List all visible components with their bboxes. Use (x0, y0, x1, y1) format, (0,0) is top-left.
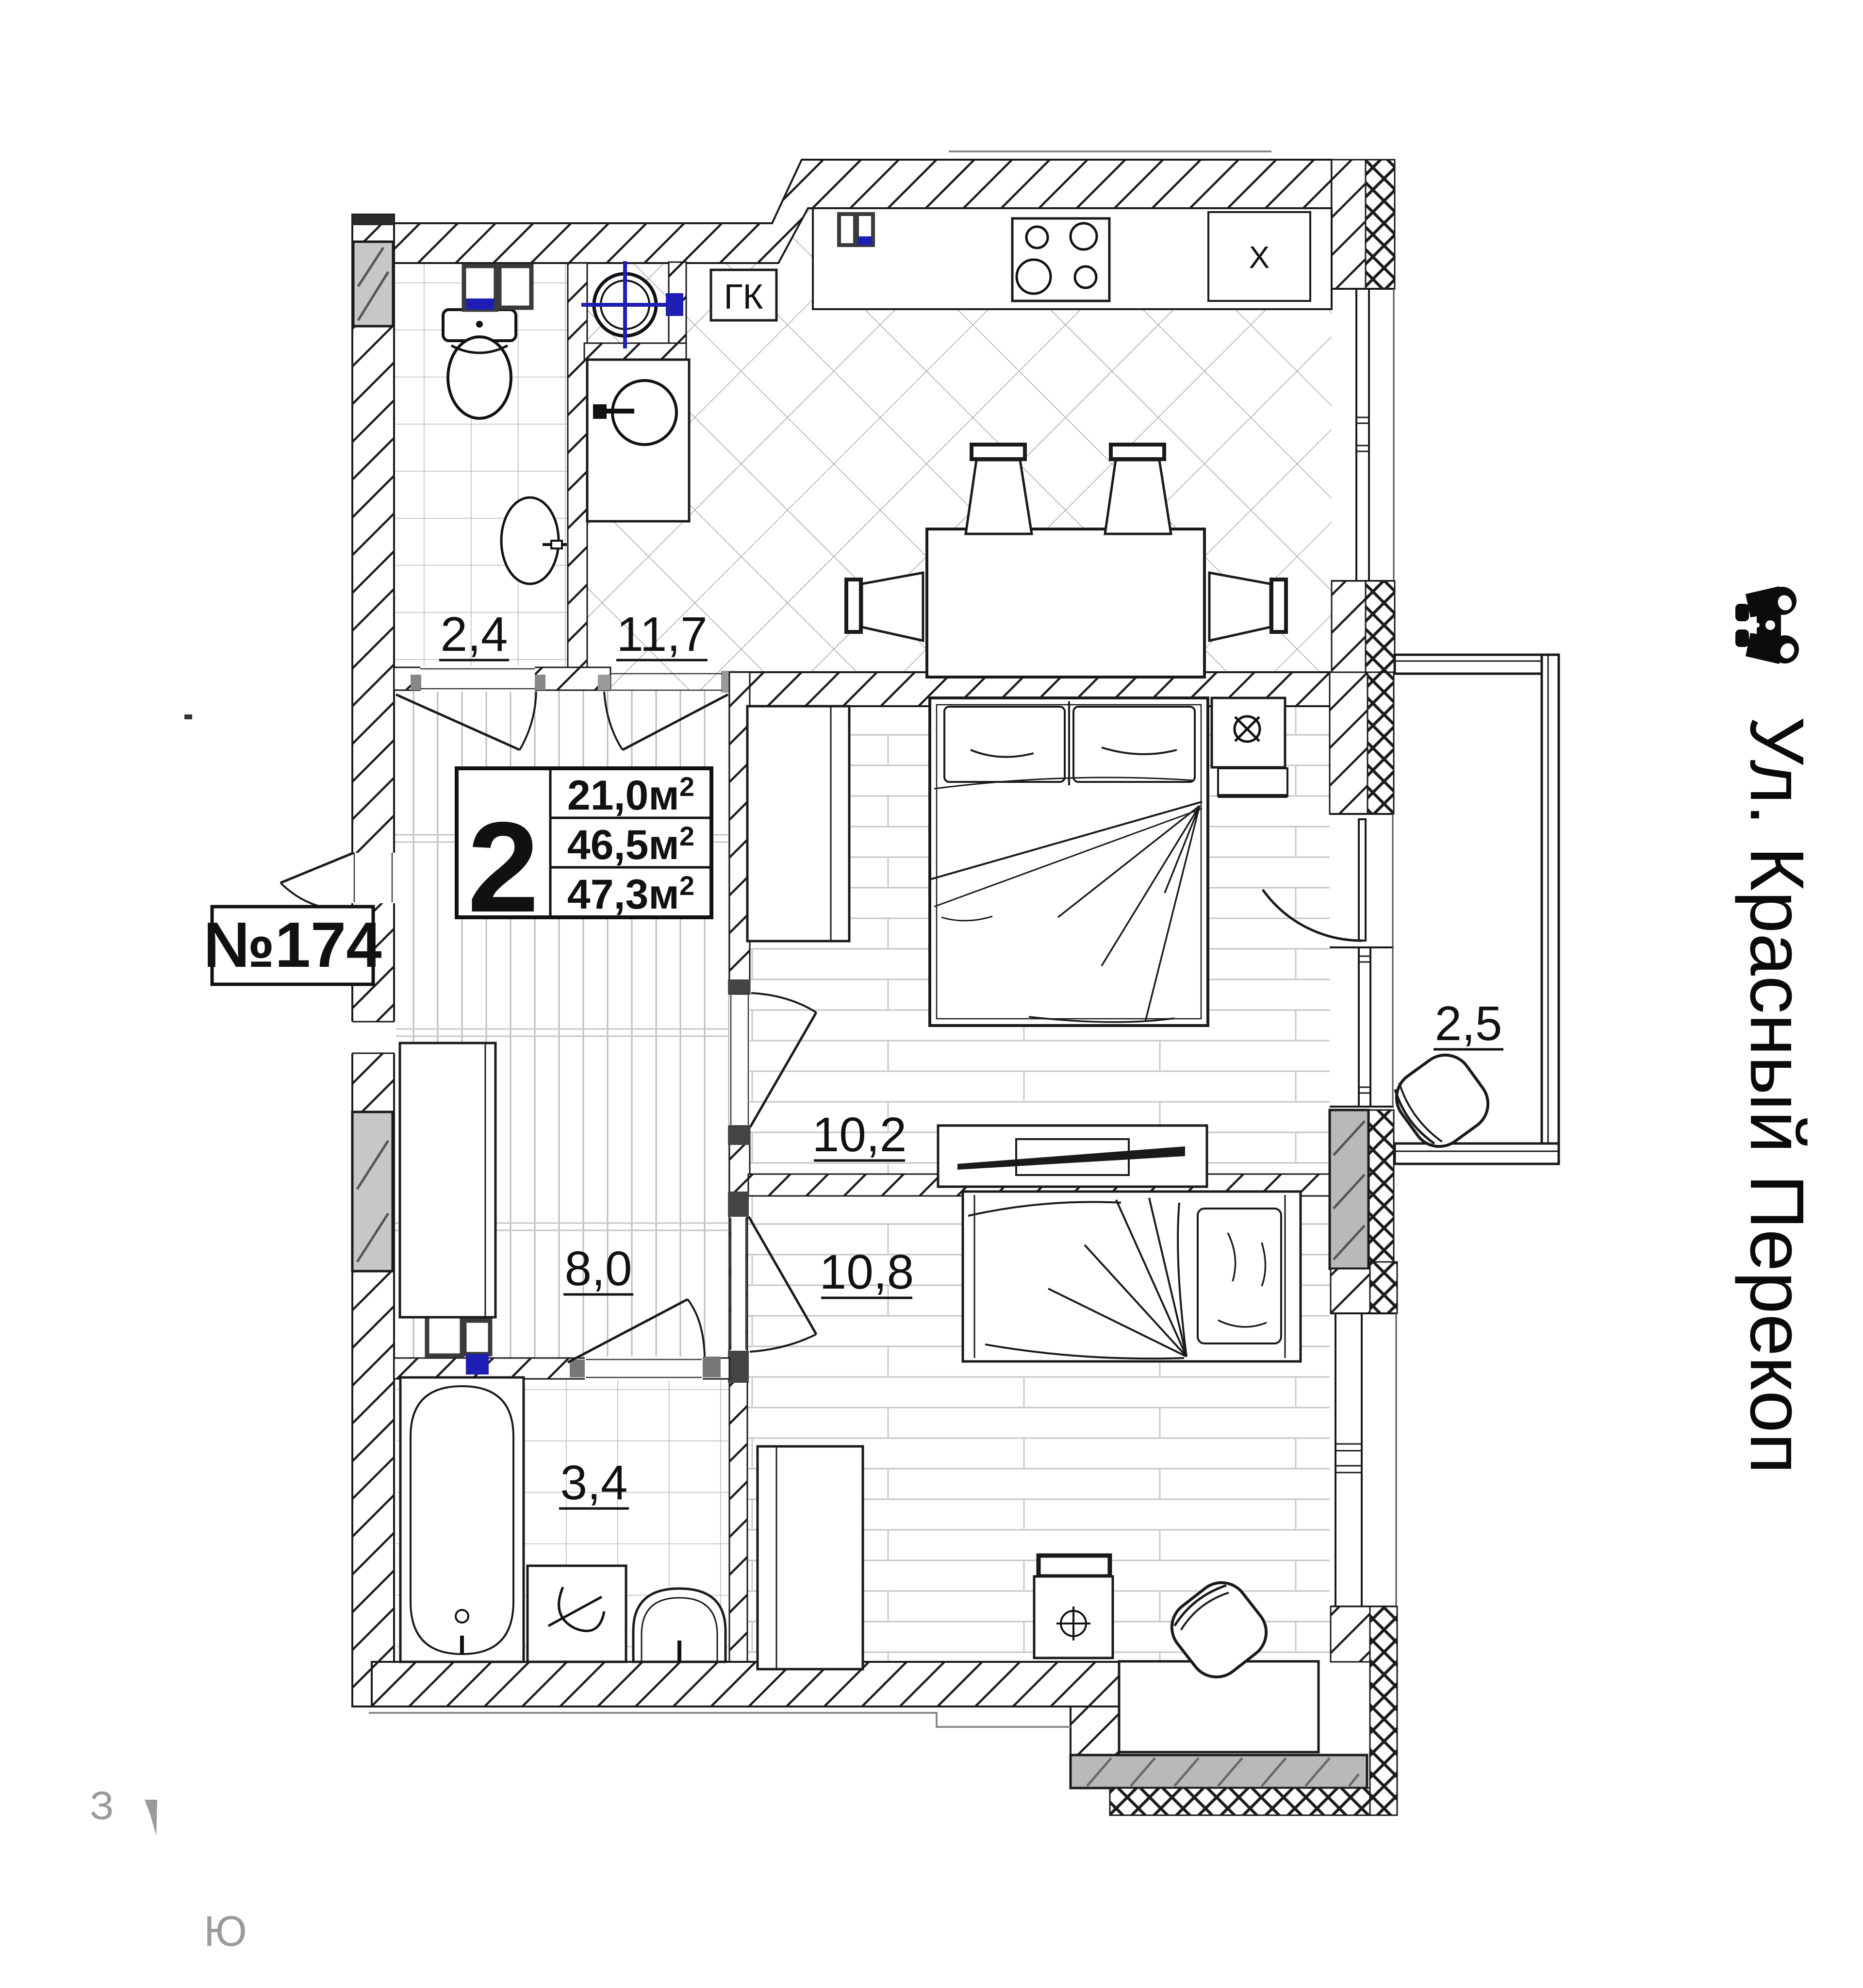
svg-text:10,2: 10,2 (812, 1108, 907, 1162)
svg-text:2,5: 2,5 (1434, 996, 1502, 1051)
svg-text:ГК: ГК (724, 278, 763, 316)
svg-text:Ул. Красный Перекоп: Ул. Красный Перекоп (1734, 716, 1819, 1474)
svg-text:47,3м2: 47,3м2 (567, 870, 694, 918)
svg-text:2,4: 2,4 (440, 607, 508, 662)
svg-text:X: X (1249, 240, 1270, 275)
svg-text:З: З (90, 1784, 114, 1828)
svg-text:10,8: 10,8 (820, 1245, 914, 1299)
svg-text:21,0м2: 21,0м2 (567, 771, 694, 819)
svg-text:№174: №174 (203, 909, 381, 980)
svg-text:3,4: 3,4 (560, 1456, 627, 1510)
svg-text:46,5м2: 46,5м2 (567, 821, 694, 868)
svg-text:2: 2 (467, 795, 539, 939)
svg-text:Ю: Ю (204, 1907, 247, 1955)
svg-text:8,0: 8,0 (564, 1242, 632, 1296)
svg-text:11,7: 11,7 (616, 607, 707, 662)
